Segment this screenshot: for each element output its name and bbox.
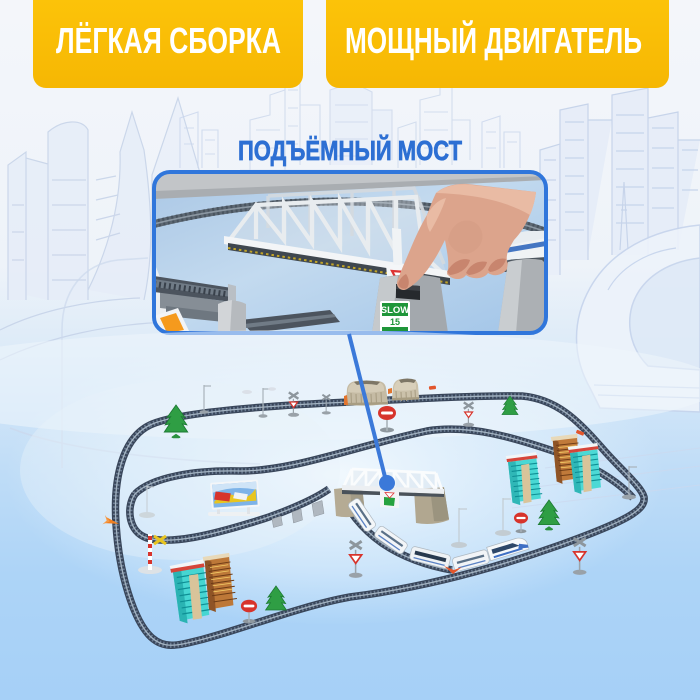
svg-text:SLOW: SLOW (381, 305, 410, 316)
svg-text:ПОДЪЁМНЫЙ МОСТ: ПОДЪЁМНЫЙ МОСТ (238, 135, 462, 166)
svg-text:МОЩНЫЙ ДВИГАТЕЛЬ: МОЩНЫЙ ДВИГАТЕЛЬ (345, 19, 642, 61)
svg-text:15: 15 (390, 317, 400, 327)
svg-text:ЛЁГКАЯ СБОРКА: ЛЁГКАЯ СБОРКА (56, 20, 281, 61)
